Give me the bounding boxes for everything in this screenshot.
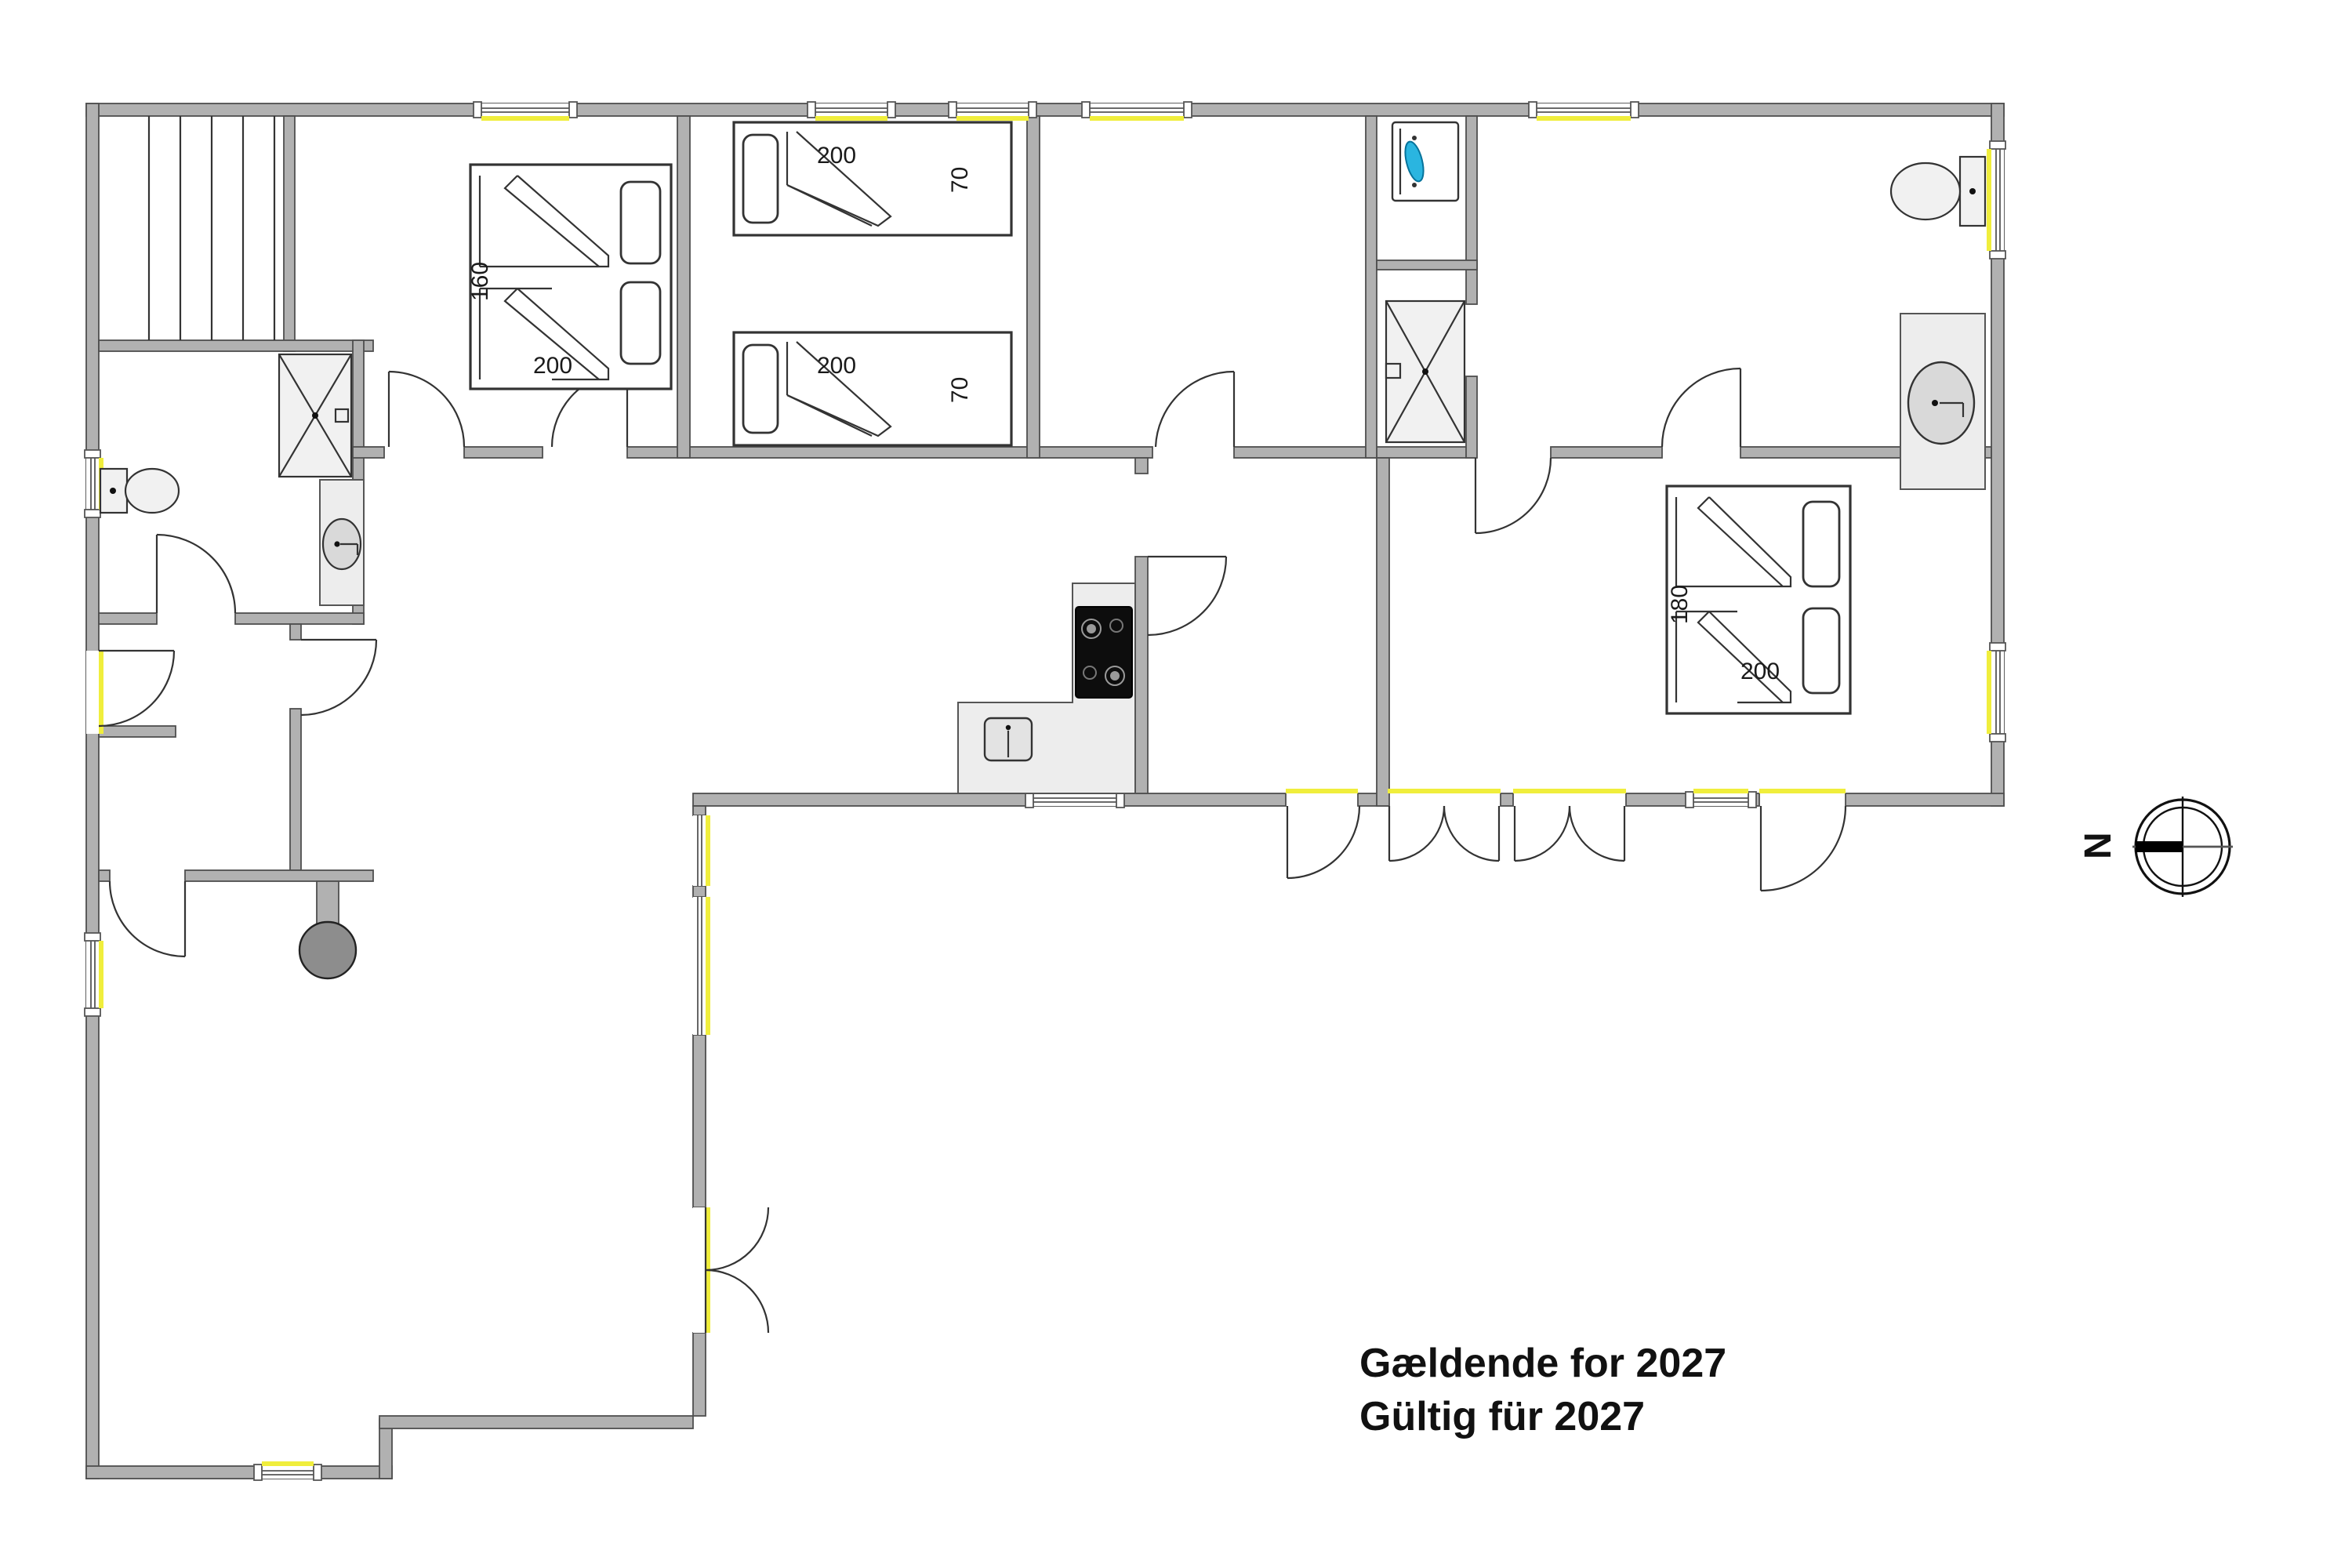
bed2a-width-label: 70 <box>947 167 973 193</box>
sauna-bench-icon <box>149 116 274 340</box>
validity-note: Gældende for 2027 Gültig für 2027 <box>1359 1341 1726 1439</box>
french-door <box>693 1207 768 1333</box>
window-icon <box>1987 141 2005 259</box>
window-icon <box>474 102 577 121</box>
shower-icon <box>279 354 351 477</box>
window-icon <box>693 815 710 886</box>
window-icon <box>85 933 103 1016</box>
door-swing-icon <box>110 881 185 956</box>
toilet-icon <box>100 469 179 513</box>
window-icon <box>949 102 1036 121</box>
note-line-2: Gültig für 2027 <box>1359 1394 1645 1439</box>
window-icon <box>254 1461 321 1480</box>
bed2b-length-label: 200 <box>817 353 856 379</box>
kitchen <box>958 583 1135 793</box>
cooktop-icon <box>1076 607 1132 698</box>
door-swing-icon <box>389 372 464 447</box>
compass-north-label: N <box>2078 832 2119 859</box>
bed1-width-label: 160 <box>467 262 493 301</box>
front-door <box>86 651 174 734</box>
french-door <box>1388 789 1501 861</box>
window-icon <box>1529 102 1639 121</box>
washing-machine-icon <box>1392 122 1458 201</box>
bed2a-length-label: 200 <box>817 143 856 169</box>
door-swing-icon <box>1286 789 1359 878</box>
bed-single-bottom: 200 70 <box>734 332 1011 445</box>
floor-plan: 160 200 200 70 200 70 180 200 <box>0 0 2352 1568</box>
window-icon <box>808 102 895 121</box>
sink-icon <box>1900 314 1985 489</box>
kitchen-sink-icon <box>985 718 1032 760</box>
french-door <box>1513 789 1626 861</box>
bed2b-width-label: 70 <box>947 377 973 403</box>
bed-single-top: 200 70 <box>734 122 1011 235</box>
bed-double-180: 180 200 <box>1667 486 1850 713</box>
window-icon <box>1082 102 1192 121</box>
door-swing-icon <box>157 535 235 613</box>
door-swing-icon <box>301 640 376 715</box>
window-icon <box>1987 643 2005 742</box>
door-swing-icon <box>1662 368 1740 447</box>
bed1-length-label: 200 <box>533 353 572 379</box>
door-swing-icon <box>1156 372 1234 447</box>
toilet-icon <box>1891 157 1985 226</box>
shower-icon <box>1386 301 1465 442</box>
door-swing-icon <box>1148 557 1226 635</box>
bed4-width-label: 180 <box>1667 585 1693 624</box>
note-line-1: Gældende for 2027 <box>1359 1341 1726 1386</box>
wood-stove-icon <box>299 922 356 978</box>
sink-icon <box>320 480 364 605</box>
bed4-length-label: 200 <box>1740 659 1780 684</box>
compass-rose-icon: N <box>2078 797 2233 897</box>
door-swing-icon <box>1475 458 1551 533</box>
window-icon <box>1686 789 1756 808</box>
door-swing-icon <box>1759 789 1846 891</box>
bed-double-160: 160 200 <box>467 165 671 389</box>
window-icon <box>693 897 710 1035</box>
